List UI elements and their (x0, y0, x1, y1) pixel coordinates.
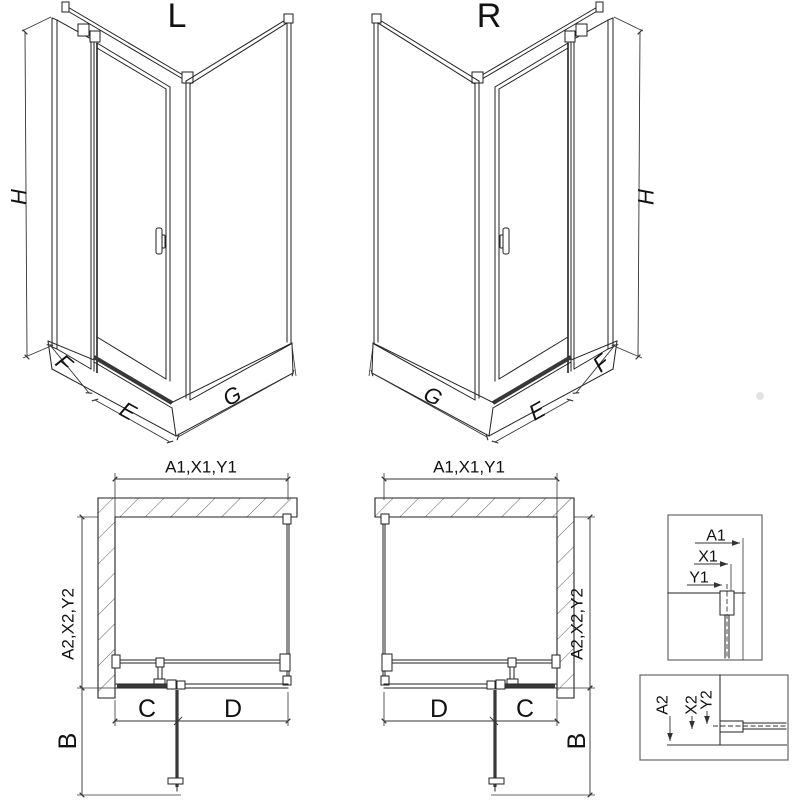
plan-left-depth-dims: A2,X2,Y2 (59, 588, 78, 660)
wall-section-right-plan (375, 498, 574, 698)
plan-left-width-dims: A1,X1,Y1 (165, 458, 237, 477)
dim-label-G-left: G (219, 381, 246, 411)
plan-right-width-dims: A1,X1,Y1 (433, 458, 505, 477)
plan-left-dim-B: B (54, 733, 82, 750)
watermark-dot (756, 392, 764, 400)
detail-box-depth: A2 X2 Y2 (640, 675, 788, 760)
iso-view-left: L H F E G (7, 0, 297, 442)
dim-label-H-left: H (7, 189, 32, 205)
detail-label-Y1: Y1 (689, 570, 709, 587)
technical-drawing-page: L H F E G R H F E G A1,X1,Y1 A2,X2,Y2 C … (0, 0, 800, 800)
dim-label-G-right: G (420, 381, 447, 411)
detail-box-width: A1 X1 Y1 (668, 515, 762, 660)
wall-section-left-plan (98, 498, 297, 698)
plan-right-dim-D: D (430, 695, 448, 723)
variant-label-left: L (168, 0, 187, 35)
detail-label-Y2: Y2 (699, 690, 716, 710)
detail-label-A1: A1 (706, 528, 726, 545)
dim-label-E-right: E (525, 396, 550, 425)
plan-view-left: A1,X1,Y1 A2,X2,Y2 C D B (54, 458, 297, 796)
iso-left-geometry (22, 2, 296, 442)
detail-label-X1: X1 (698, 549, 718, 566)
plan-left-dim-D: D (224, 695, 242, 723)
dim-label-F-left: F (51, 349, 79, 378)
dim-label-E-left: E (116, 397, 141, 426)
plan-right-dim-B: B (563, 733, 591, 750)
plan-right-dim-C: C (516, 695, 534, 723)
plan-right-depth-dims: A2,X2,Y2 (568, 588, 587, 660)
detail-box-depth-frame (640, 675, 788, 760)
plan-view-right: A1,X1,Y1 A2,X2,Y2 D C B (375, 458, 595, 796)
variant-label-right: R (477, 0, 502, 35)
dim-label-H-right: H (634, 189, 659, 205)
detail-label-A2: A2 (655, 695, 672, 715)
iso-view-right: R H F E G (369, 0, 659, 442)
shower-enclosure-diagram: L H F E G R H F E G A1,X1,Y1 A2,X2,Y2 C … (0, 0, 800, 800)
plan-left-dim-C: C (138, 695, 156, 723)
wall-profile-section (720, 721, 743, 732)
